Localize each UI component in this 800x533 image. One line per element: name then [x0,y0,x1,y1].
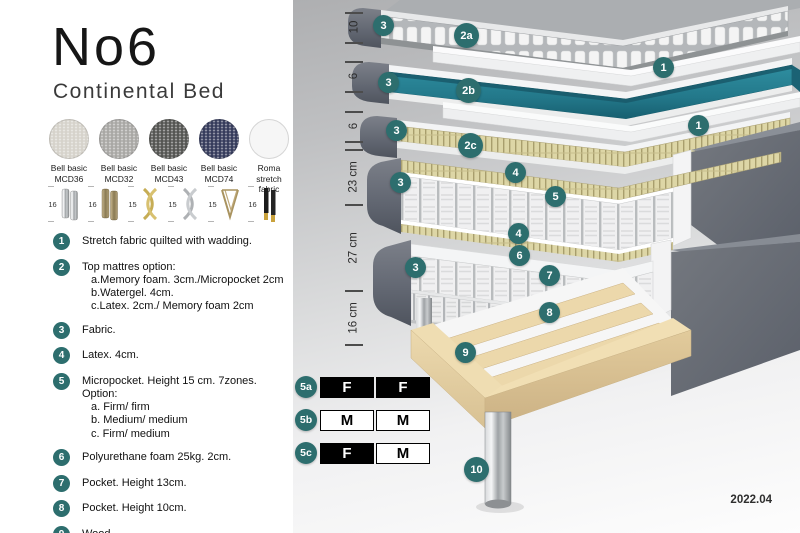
legend-badge: 3 [53,322,70,339]
legend-badge: 4 [53,347,70,364]
ruler-tick [345,344,363,346]
ruler-label: 16 cm [343,292,365,343]
firmness-badge: 5a [295,376,317,398]
legend-badge: 6 [53,449,70,466]
firmness-cell: F [320,377,374,398]
fabric-swatch-disc [199,119,239,159]
legend-text: Pocket. Height 10cm. [82,500,187,515]
legend-text: Stretch fabric quilted with wadding. [82,233,252,248]
firmness-row-5c: 5c F M [295,442,430,464]
ruler-label: 27 cm [343,206,365,289]
callout-badge: 2b [456,78,481,103]
legend-text: Top mattres option: a.Memory foam. 3cm./… [82,259,284,314]
callout-badge: 9 [455,342,476,363]
callout-badge: 8 [539,302,560,323]
callout-badge: 2a [454,23,479,48]
leg-height-label: 16 [48,200,56,209]
fabric-swatch-label: Bell basicMCD32 [101,163,137,184]
legend-badge: 9 [53,526,70,533]
ruler-tick [345,42,363,44]
legend-item: 8 Pocket. Height 10cm. [53,500,291,517]
leg-twisted-silver-icon [179,186,201,222]
firmness-cell: F [320,443,374,464]
legend-text: Latex. 4cm. [82,347,139,362]
leg-option: 15 [126,186,163,222]
fabric-swatch: Bell basicMCD36 [48,119,90,195]
callout-badge: 1 [653,57,674,78]
callout-badge: 1 [688,115,709,136]
callout-badge: 3 [386,120,407,141]
firmness-cell: M [376,443,430,464]
leg-height-label: 15 [128,200,136,209]
legend-item: 4 Latex. 4cm. [53,347,291,364]
callout-badge: 3 [390,172,411,193]
leg-options: 16 16 15 15 [46,186,283,222]
callout-badge: 7 [539,265,560,286]
firmness-row-5a: 5a F F [295,376,430,398]
legend-badge: 5 [53,373,70,390]
fabric-swatch-disc [49,119,89,159]
leg-option: 16 [86,186,123,222]
fabric-swatch-disc [249,119,289,159]
firmness-badge: 5c [295,442,317,464]
leg-twisted-gold-icon [139,186,161,222]
legend-item: 2 Top mattres option: a.Memory foam. 3cm… [53,259,291,314]
legend-item: 9 Wood. [53,526,291,533]
fabric-swatch: Bell basicMCD74 [198,119,240,195]
version-label: 2022.04 [730,494,772,506]
fabric-swatch-disc [99,119,139,159]
fabric-swatch: Romastretch fabric [248,119,290,195]
legend-item: 3 Fabric. [53,322,291,339]
callout-badge: 10 [464,457,489,482]
firmness-badge: 5b [295,409,317,431]
firmness-cell: M [376,410,430,431]
legend-text: Polyurethane foam 25kg. 2cm. [82,449,231,464]
fabric-swatch-disc [149,119,189,159]
fabric-swatch-label: Bell basicMCD74 [201,163,237,184]
leg-height-label: 16 [248,200,256,209]
product-title: No6 [52,16,160,78]
ruler-label: 6 [343,112,365,140]
firmness-cell: F [376,377,430,398]
ruler-label: 10 [343,13,365,41]
legend-text: Pocket. Height 13cm. [82,475,187,490]
callout-badge: 3 [373,15,394,36]
leg-height-label: 15 [168,200,176,209]
fabric-swatch: Bell basicMCD43 [148,119,190,195]
legend-badge: 1 [53,233,70,250]
legend-text: Fabric. [82,322,116,337]
ruler-label: 6 [343,62,365,90]
firmness-bar: M M [320,410,430,431]
callout-badge: 4 [505,162,526,183]
callout-badge: 3 [378,72,399,93]
leg-option: 15 [206,186,243,222]
legend-text: Wood. [82,526,114,533]
infographic-page: No6 Continental Bed Bell basicMCD36 Bell… [0,0,800,533]
leg-option: 15 [166,186,203,222]
fabric-swatches: Bell basicMCD36 Bell basicMCD32 Bell bas… [48,119,290,195]
leg-option: 16 [46,186,83,222]
legend-badge: 8 [53,500,70,517]
leg-tapered-black-gold-icon [259,186,281,222]
ruler-label: 23 cm [343,150,365,203]
firmness-bar: F F [320,377,430,398]
callout-badge: 3 [405,257,426,278]
legend-text: Micropocket. Height 15 cm. 7zones. Optio… [82,373,291,441]
legend-item: 1 Stretch fabric quilted with wadding. [53,233,291,250]
fabric-swatch-label: Bell basicMCD36 [51,163,87,184]
legend-badge: 7 [53,475,70,492]
fabric-swatch: Bell basicMCD32 [98,119,140,195]
firmness-cell: M [320,410,374,431]
leg-cylinder-bronze-icon [99,186,121,222]
leg-height-label: 16 [88,200,96,209]
callout-badge: 5 [545,186,566,207]
firmness-bar: F M [320,443,430,464]
callout-badge: 4 [508,223,529,244]
fabric-swatch-label: Bell basicMCD43 [151,163,187,184]
callout-badge: 2c [458,133,483,158]
legend-item: 7 Pocket. Height 13cm. [53,475,291,492]
ruler-tick [345,91,363,93]
firmness-row-5b: 5b M M [295,409,430,431]
leg-cylinder-chrome-icon [59,186,81,222]
callout-badge: 6 [509,245,530,266]
product-subtitle: Continental Bed [53,80,225,104]
legend-item: 5 Micropocket. Height 15 cm. 7zones. Opt… [53,373,291,441]
leg-height-label: 15 [208,200,216,209]
ruler-tick [345,141,363,143]
leg-option: 16 [246,186,283,222]
legend-item: 6 Polyurethane foam 25kg. 2cm. [53,449,291,466]
bed-cutaway-diagram: 10 6 6 23 cm 27 cm 16 cm 3 2a 1 3 2b 1 3… [293,0,800,533]
leg-hairpin-icon [219,186,241,222]
legend-badge: 2 [53,259,70,276]
legend-list: 1 Stretch fabric quilted with wadding. 2… [53,233,291,533]
